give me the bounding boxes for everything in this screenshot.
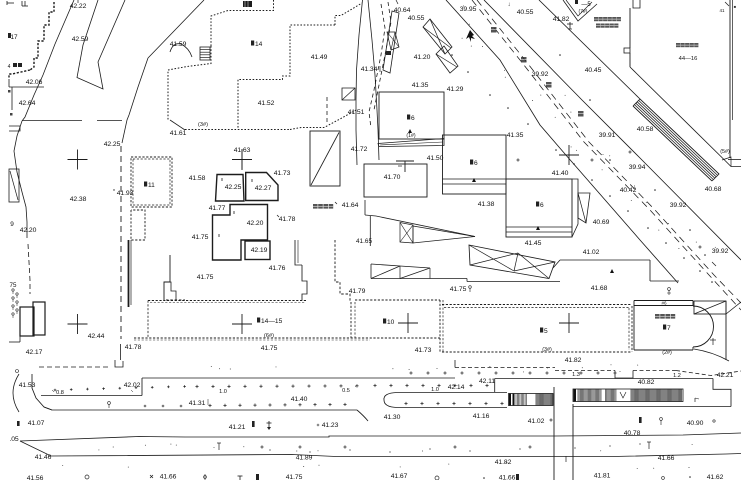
svg-text:41.79: 41.79	[349, 288, 366, 295]
svg-text:41.82: 41.82	[565, 357, 582, 364]
svg-text:7: 7	[667, 325, 671, 332]
svg-text:41.35: 41.35	[412, 82, 429, 89]
svg-text:6: 6	[411, 115, 415, 122]
svg-text:41.65: 41.65	[356, 238, 372, 245]
svg-text:41.70: 41.70	[384, 174, 401, 181]
svg-text:41.40: 41.40	[552, 170, 569, 177]
svg-text:41.75: 41.75	[197, 274, 214, 281]
svg-text:41.46: 41.46	[35, 454, 52, 461]
svg-text:41.66: 41.66	[160, 474, 177, 480]
svg-text:41.67: 41.67	[391, 473, 408, 480]
svg-text:39.95: 39.95	[460, 6, 477, 13]
svg-text:41.02: 41.02	[528, 418, 545, 425]
svg-text:39.91: 39.91	[599, 132, 616, 139]
svg-text:41.76: 41.76	[269, 265, 286, 272]
svg-text:4: 4	[8, 64, 11, 70]
svg-text:42.02: 42.02	[124, 382, 141, 389]
svg-text:41.75: 41.75	[261, 345, 278, 352]
svg-text:41.49: 41.49	[311, 54, 328, 61]
svg-text:14: 14	[255, 41, 263, 48]
svg-text:41.68: 41.68	[591, 285, 608, 292]
svg-text:41.56: 41.56	[27, 475, 44, 480]
svg-text:42.25: 42.25	[104, 141, 121, 148]
svg-text:42.14: 42.14	[448, 384, 465, 391]
svg-text:42.25: 42.25	[225, 184, 242, 191]
svg-text:5: 5	[544, 328, 548, 335]
svg-text:41.02: 41.02	[583, 249, 600, 256]
svg-text:40.45: 40.45	[585, 67, 602, 74]
svg-text:41.64: 41.64	[342, 202, 359, 209]
svg-text:40.64: 40.64	[394, 7, 411, 14]
svg-text:42.27: 42.27	[255, 185, 272, 192]
svg-text:41.77: 41.77	[209, 205, 226, 212]
svg-text:41.40: 41.40	[291, 396, 308, 403]
svg-text:41.52: 41.52	[258, 100, 275, 107]
svg-text:0.5: 0.5	[342, 388, 350, 394]
svg-text:41.51: 41.51	[348, 109, 365, 116]
svg-text:44—16: 44—16	[679, 56, 698, 62]
svg-text:41.78: 41.78	[125, 344, 142, 351]
svg-text:40.58: 40.58	[637, 126, 654, 133]
svg-text:41.66: 41.66	[499, 475, 516, 480]
svg-text:(5#): (5#)	[720, 149, 730, 155]
svg-text:II: II	[233, 210, 235, 215]
svg-text:42.44: 42.44	[88, 333, 105, 340]
svg-text:41.31: 41.31	[189, 400, 206, 407]
svg-text:II: II	[218, 233, 220, 238]
svg-text:41.73: 41.73	[274, 170, 291, 177]
svg-text:41.89: 41.89	[296, 455, 313, 462]
svg-text:41.75: 41.75	[286, 474, 303, 480]
svg-text:41.66: 41.66	[658, 455, 675, 462]
svg-text:41.53: 41.53	[19, 382, 36, 389]
svg-text:42.20: 42.20	[20, 227, 37, 234]
svg-text:6: 6	[540, 202, 544, 209]
svg-text:41.20: 41.20	[414, 54, 431, 61]
svg-text:41.58: 41.58	[189, 175, 206, 182]
svg-text:.05: .05	[9, 436, 18, 443]
svg-text:(3#): (3#)	[198, 122, 208, 128]
svg-text:40.42: 40.42	[620, 187, 637, 194]
svg-text:41.82: 41.82	[495, 459, 512, 466]
svg-text:II: II	[251, 178, 253, 183]
svg-text:42.11: 42.11	[479, 378, 495, 385]
svg-text:41.75: 41.75	[192, 234, 209, 241]
svg-text:1.0: 1.0	[431, 387, 439, 393]
svg-text:42.19: 42.19	[251, 247, 268, 254]
svg-text:41.16: 41.16	[473, 413, 490, 420]
svg-text:42.20: 42.20	[247, 220, 264, 227]
svg-text:14—15: 14—15	[261, 318, 283, 325]
svg-text:(7#): (7#)	[579, 9, 588, 15]
svg-text:40.55: 40.55	[408, 15, 425, 22]
svg-text:42.38: 42.38	[70, 196, 87, 203]
svg-text:↓: ↓	[508, 2, 511, 8]
svg-text:39.92: 39.92	[712, 248, 729, 255]
svg-text:39.92: 39.92	[670, 202, 687, 209]
svg-text:41.34: 41.34	[361, 66, 378, 73]
svg-text:39.94: 39.94	[629, 164, 646, 171]
svg-text:11: 11	[148, 182, 155, 189]
svg-text:II: II	[221, 177, 223, 182]
svg-text:75: 75	[10, 282, 17, 289]
svg-text:42.17: 42.17	[26, 349, 43, 356]
svg-text:41.59: 41.59	[170, 41, 187, 48]
svg-text:41.62: 41.62	[707, 474, 724, 480]
svg-text:41.07: 41.07	[28, 420, 45, 427]
svg-text:41.23: 41.23	[322, 422, 339, 429]
svg-text:41.21: 41.21	[229, 424, 246, 431]
svg-text:17: 17	[10, 34, 18, 41]
svg-text:40.78: 40.78	[624, 430, 641, 437]
svg-text:41.45: 41.45	[525, 240, 542, 247]
svg-text:41.30: 41.30	[384, 414, 401, 421]
svg-text:41.72: 41.72	[351, 146, 368, 153]
svg-text:39.92: 39.92	[532, 71, 549, 78]
svg-text:(3#): (3#)	[542, 347, 552, 353]
svg-text:41.61: 41.61	[170, 130, 187, 137]
svg-text:10: 10	[387, 319, 395, 326]
svg-text:41.38: 41.38	[478, 201, 495, 208]
svg-text:40.82: 40.82	[638, 379, 655, 386]
svg-text:42.64: 42.64	[19, 100, 36, 107]
svg-text:41.63: 41.63	[234, 147, 251, 154]
svg-text:41.82: 41.82	[553, 16, 570, 23]
svg-text:41.78: 41.78	[279, 216, 296, 223]
svg-text:40.69: 40.69	[593, 219, 610, 226]
svg-text:(2#): (2#)	[662, 350, 672, 356]
svg-text:40.90: 40.90	[687, 420, 704, 427]
svg-text:41: 41	[719, 8, 725, 13]
svg-text:40.68: 40.68	[705, 186, 722, 193]
svg-text:1.3: 1.3	[572, 372, 580, 378]
svg-text:42.21: 42.21	[717, 372, 734, 379]
svg-text:41.73: 41.73	[415, 347, 432, 354]
svg-text:0.8: 0.8	[56, 390, 64, 396]
svg-text:41.75: 41.75	[450, 286, 467, 293]
svg-text:6: 6	[474, 160, 478, 167]
svg-text:(1#): (1#)	[406, 133, 415, 139]
svg-text:41.81: 41.81	[594, 473, 611, 480]
svg-text:41.50: 41.50	[427, 155, 444, 162]
svg-text:41.35: 41.35	[507, 132, 524, 139]
svg-text:1.0: 1.0	[219, 389, 227, 395]
svg-text:41.29: 41.29	[447, 86, 464, 93]
svg-text:#6: #6	[661, 301, 667, 306]
svg-text:40.55: 40.55	[517, 9, 534, 16]
svg-text:9: 9	[10, 221, 14, 228]
svg-text:—5: —5	[581, 2, 591, 8]
